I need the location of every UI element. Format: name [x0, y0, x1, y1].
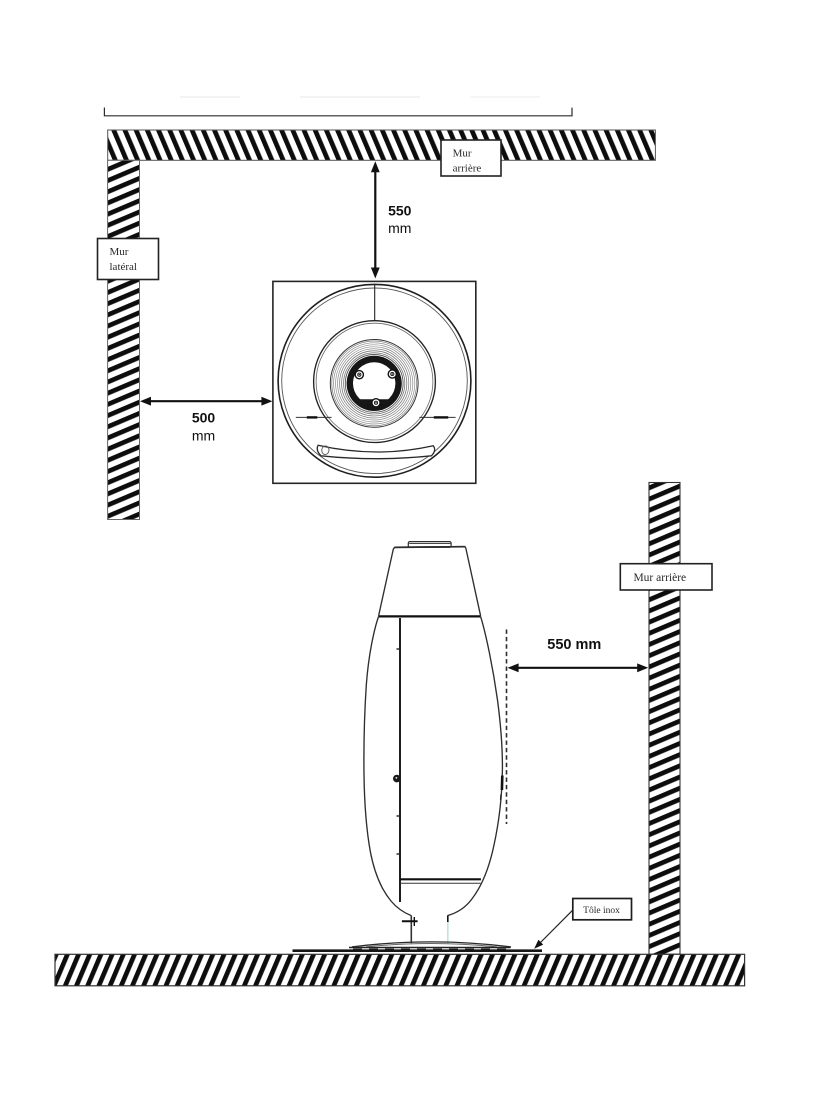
svg-text:arrière: arrière: [453, 163, 482, 175]
svg-text:Mur: Mur: [110, 246, 129, 258]
svg-text:Mur: Mur: [453, 148, 472, 160]
svg-text:500: 500: [192, 409, 216, 425]
svg-text:550 mm: 550 mm: [547, 637, 601, 653]
svg-text:mm: mm: [388, 220, 411, 236]
svg-text:mm: mm: [192, 427, 215, 443]
svg-text:Tôle inox: Tôle inox: [583, 906, 620, 916]
svg-text:Mur arrière: Mur arrière: [633, 572, 686, 584]
svg-text:550: 550: [388, 203, 412, 219]
svg-text:latéral: latéral: [110, 261, 137, 273]
